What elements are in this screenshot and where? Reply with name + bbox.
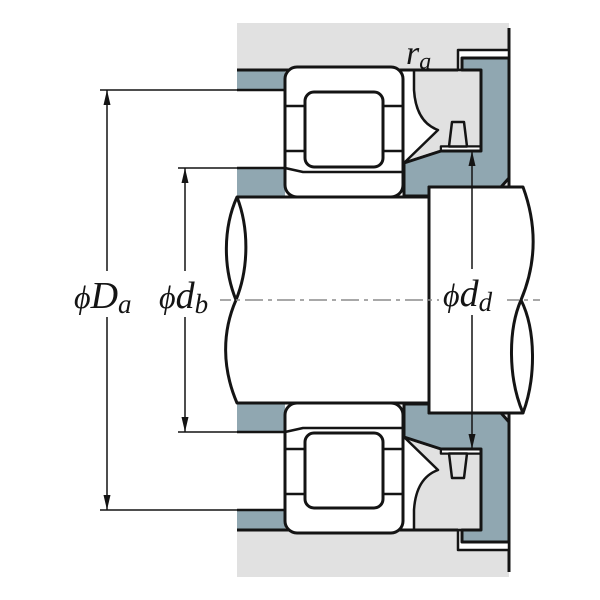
shaft-abutment-spacer-top	[237, 168, 285, 198]
arrowhead-Da-top	[104, 90, 111, 105]
labyrinth-rib-top	[449, 122, 467, 147]
housing-shoulder-spacer-top	[237, 70, 285, 90]
diagram-canvas: ϕDa ϕdb ϕdd ra	[0, 0, 600, 600]
shaft-break-arc-right	[521, 300, 533, 413]
arrowhead-db-bottom	[182, 417, 189, 432]
roller-bottom	[305, 433, 383, 508]
arrowhead-Da-bottom	[104, 495, 111, 510]
roller-top	[305, 92, 383, 167]
bearing-top-half	[285, 67, 403, 197]
arrowhead-db-top	[182, 168, 189, 183]
bearing-bottom-half	[285, 403, 403, 533]
housing-shoulder-spacer-bottom	[237, 510, 285, 530]
bearing-mounting-diagram: ϕDa ϕdb ϕdd ra	[0, 0, 600, 600]
shaft-abutment-spacer-bottom	[237, 402, 285, 432]
labyrinth-rib-bottom	[449, 454, 467, 479]
